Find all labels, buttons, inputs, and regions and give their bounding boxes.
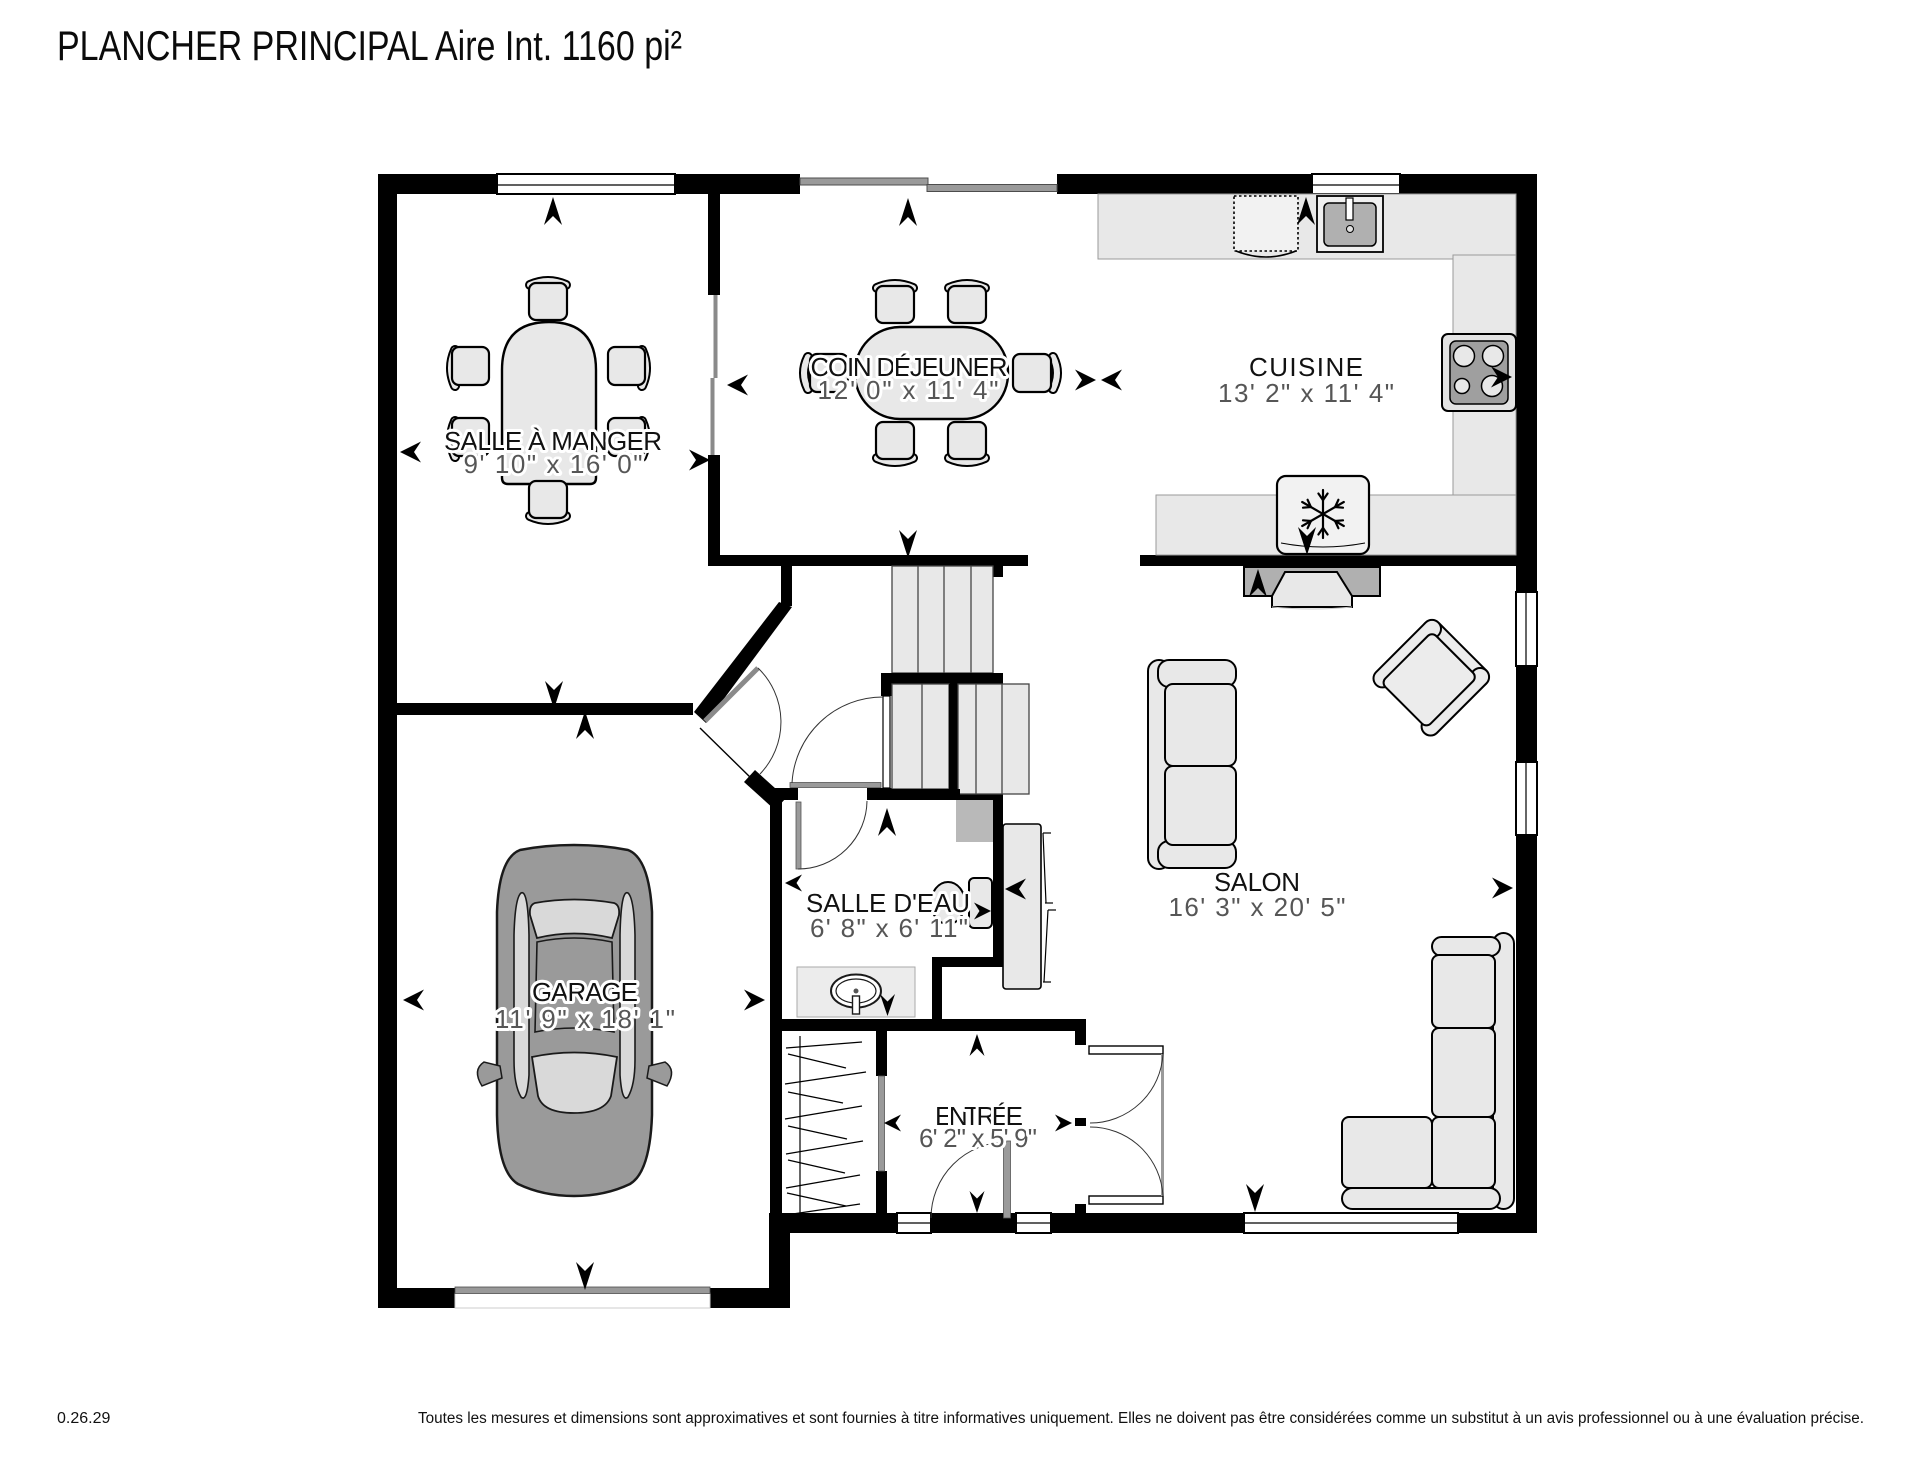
svg-text:9' 10" x 16' 0": 9' 10" x 16' 0" [464, 449, 643, 479]
svg-text:13' 2" x 11' 4": 13' 2" x 11' 4" [1218, 378, 1394, 408]
svg-text:6' 8" x 6' 11": 6' 8" x 6' 11" [810, 913, 968, 943]
svg-text:Toutes les mesures et dimensio: Toutes les mesures et dimensions sont ap… [418, 1410, 1864, 1427]
svg-text:PLANCHER PRINCIPAL Aire Int. 1: PLANCHER PRINCIPAL Aire Int. 1160 pi² [57, 22, 682, 69]
svg-text:6' 2" x 5' 9": 6' 2" x 5' 9" [919, 1123, 1037, 1153]
svg-text:16' 3" x 20' 5": 16' 3" x 20' 5" [1169, 892, 1346, 922]
svg-text:0.26.29: 0.26.29 [57, 1410, 110, 1427]
svg-text:GARAGE: GARAGE [532, 977, 638, 1007]
